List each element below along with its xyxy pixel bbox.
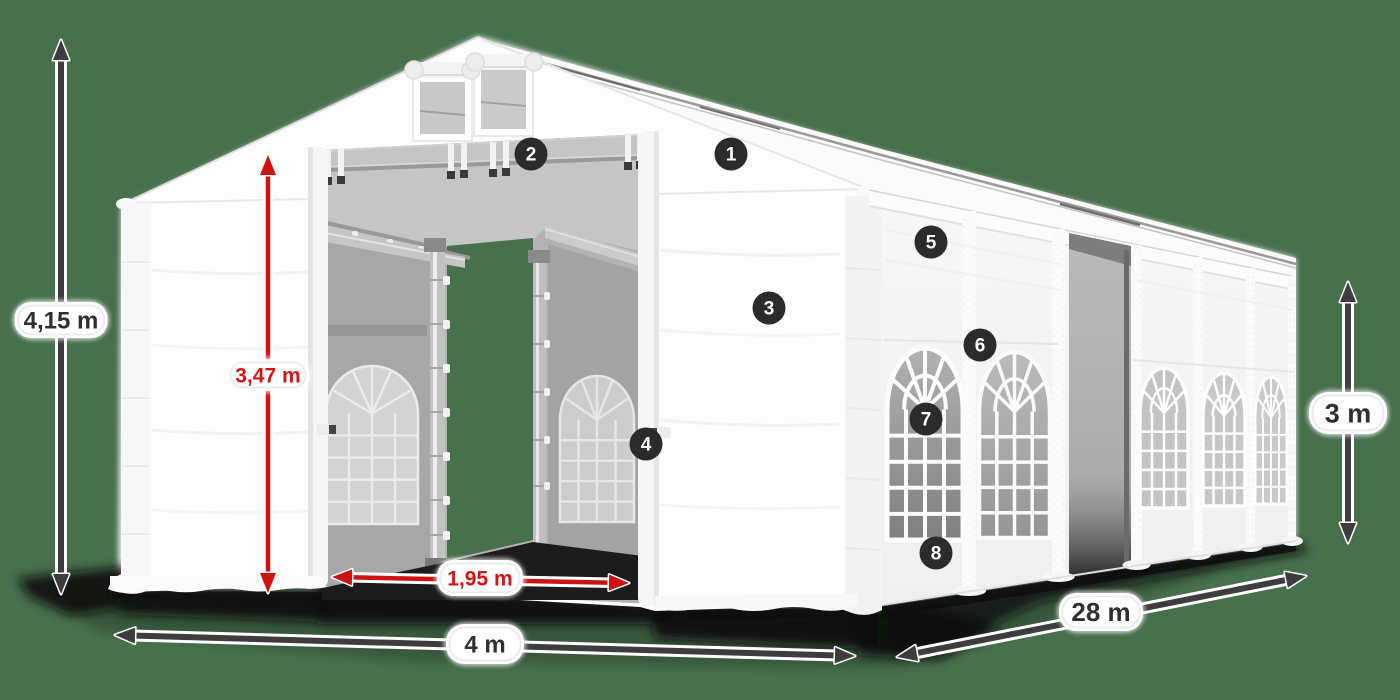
svg-text:3: 3 (764, 299, 775, 320)
svg-text:6: 6 (975, 336, 986, 357)
svg-text:2: 2 (526, 145, 537, 166)
svg-text:3,47 m: 3,47 m (235, 364, 300, 387)
svg-text:8: 8 (931, 544, 942, 565)
svg-text:7: 7 (921, 410, 932, 431)
svg-text:4: 4 (641, 435, 652, 456)
svg-text:4,15 m: 4,15 m (24, 307, 99, 334)
svg-text:1: 1 (726, 145, 737, 166)
svg-text:5: 5 (926, 233, 937, 254)
svg-text:28 m: 28 m (1071, 597, 1130, 627)
svg-text:3 m: 3 m (1325, 398, 1372, 428)
svg-text:4 m: 4 m (464, 631, 505, 658)
svg-text:1,95 m: 1,95 m (447, 567, 512, 590)
